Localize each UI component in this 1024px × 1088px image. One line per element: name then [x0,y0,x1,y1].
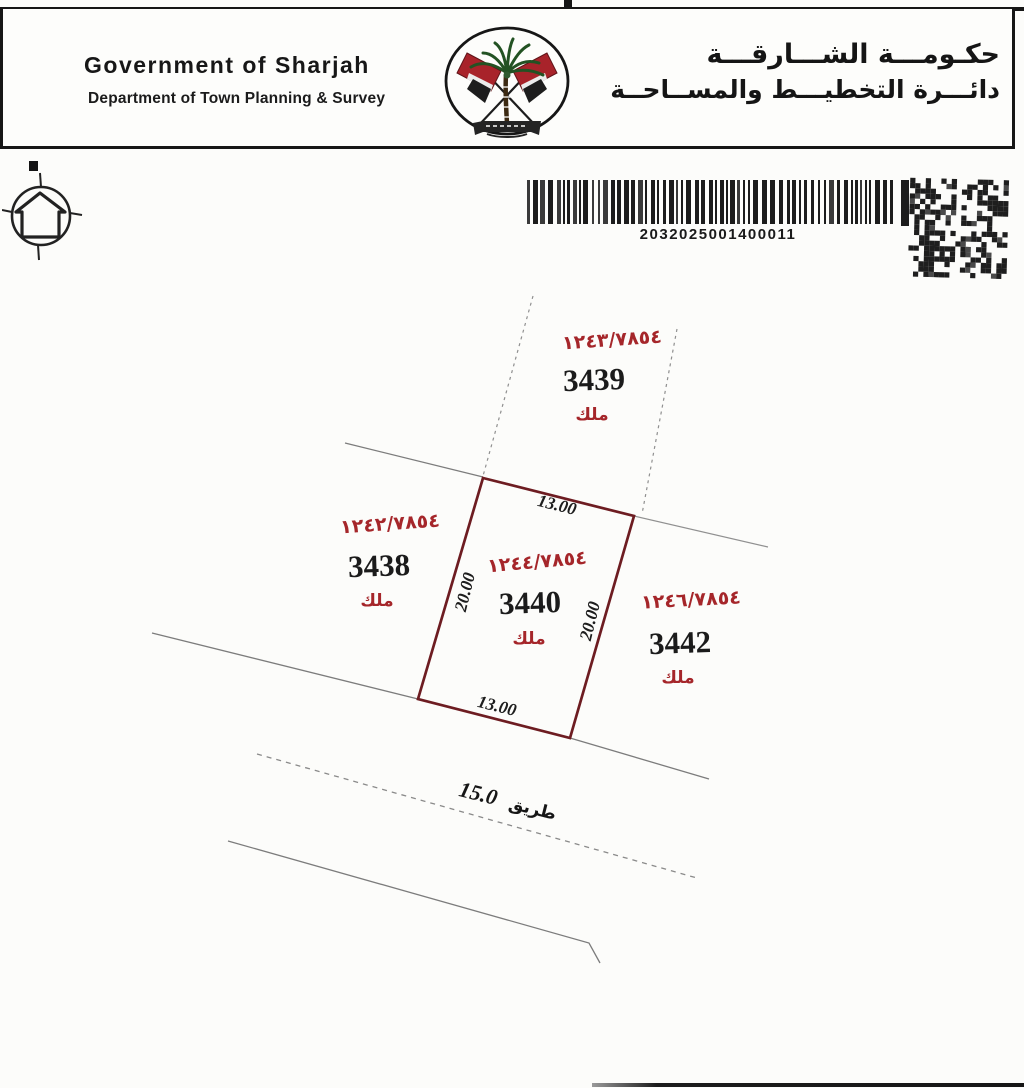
site-plan-document: Government of Sharjah Department of Town… [0,0,1024,1088]
boundary-line-upper-right [634,516,768,547]
plot-3442-owner: ملك [661,668,694,688]
plot-3439-west-boundary [483,296,533,476]
plot-3442-number: 3442 [648,624,711,662]
plot-3439-owner: ملك [575,405,608,425]
boundary-line-lower-right [570,738,709,779]
page-bottom-border [592,1083,1024,1087]
plot-3440-owner: ملك [512,629,545,649]
road-edge-dashed [257,754,697,878]
plot-3438-owner: ملك [360,591,393,611]
plot-map [0,0,1024,1088]
plot-3440-number: 3440 [498,584,561,622]
plot-3438-number: 3438 [347,547,410,585]
boundary-line-lower-left [152,633,418,699]
boundary-line-upper-left [345,443,483,477]
road-edge-solid [228,841,600,963]
plot-3439-number: 3439 [562,361,625,399]
plot-3439-east-boundary [642,329,677,514]
